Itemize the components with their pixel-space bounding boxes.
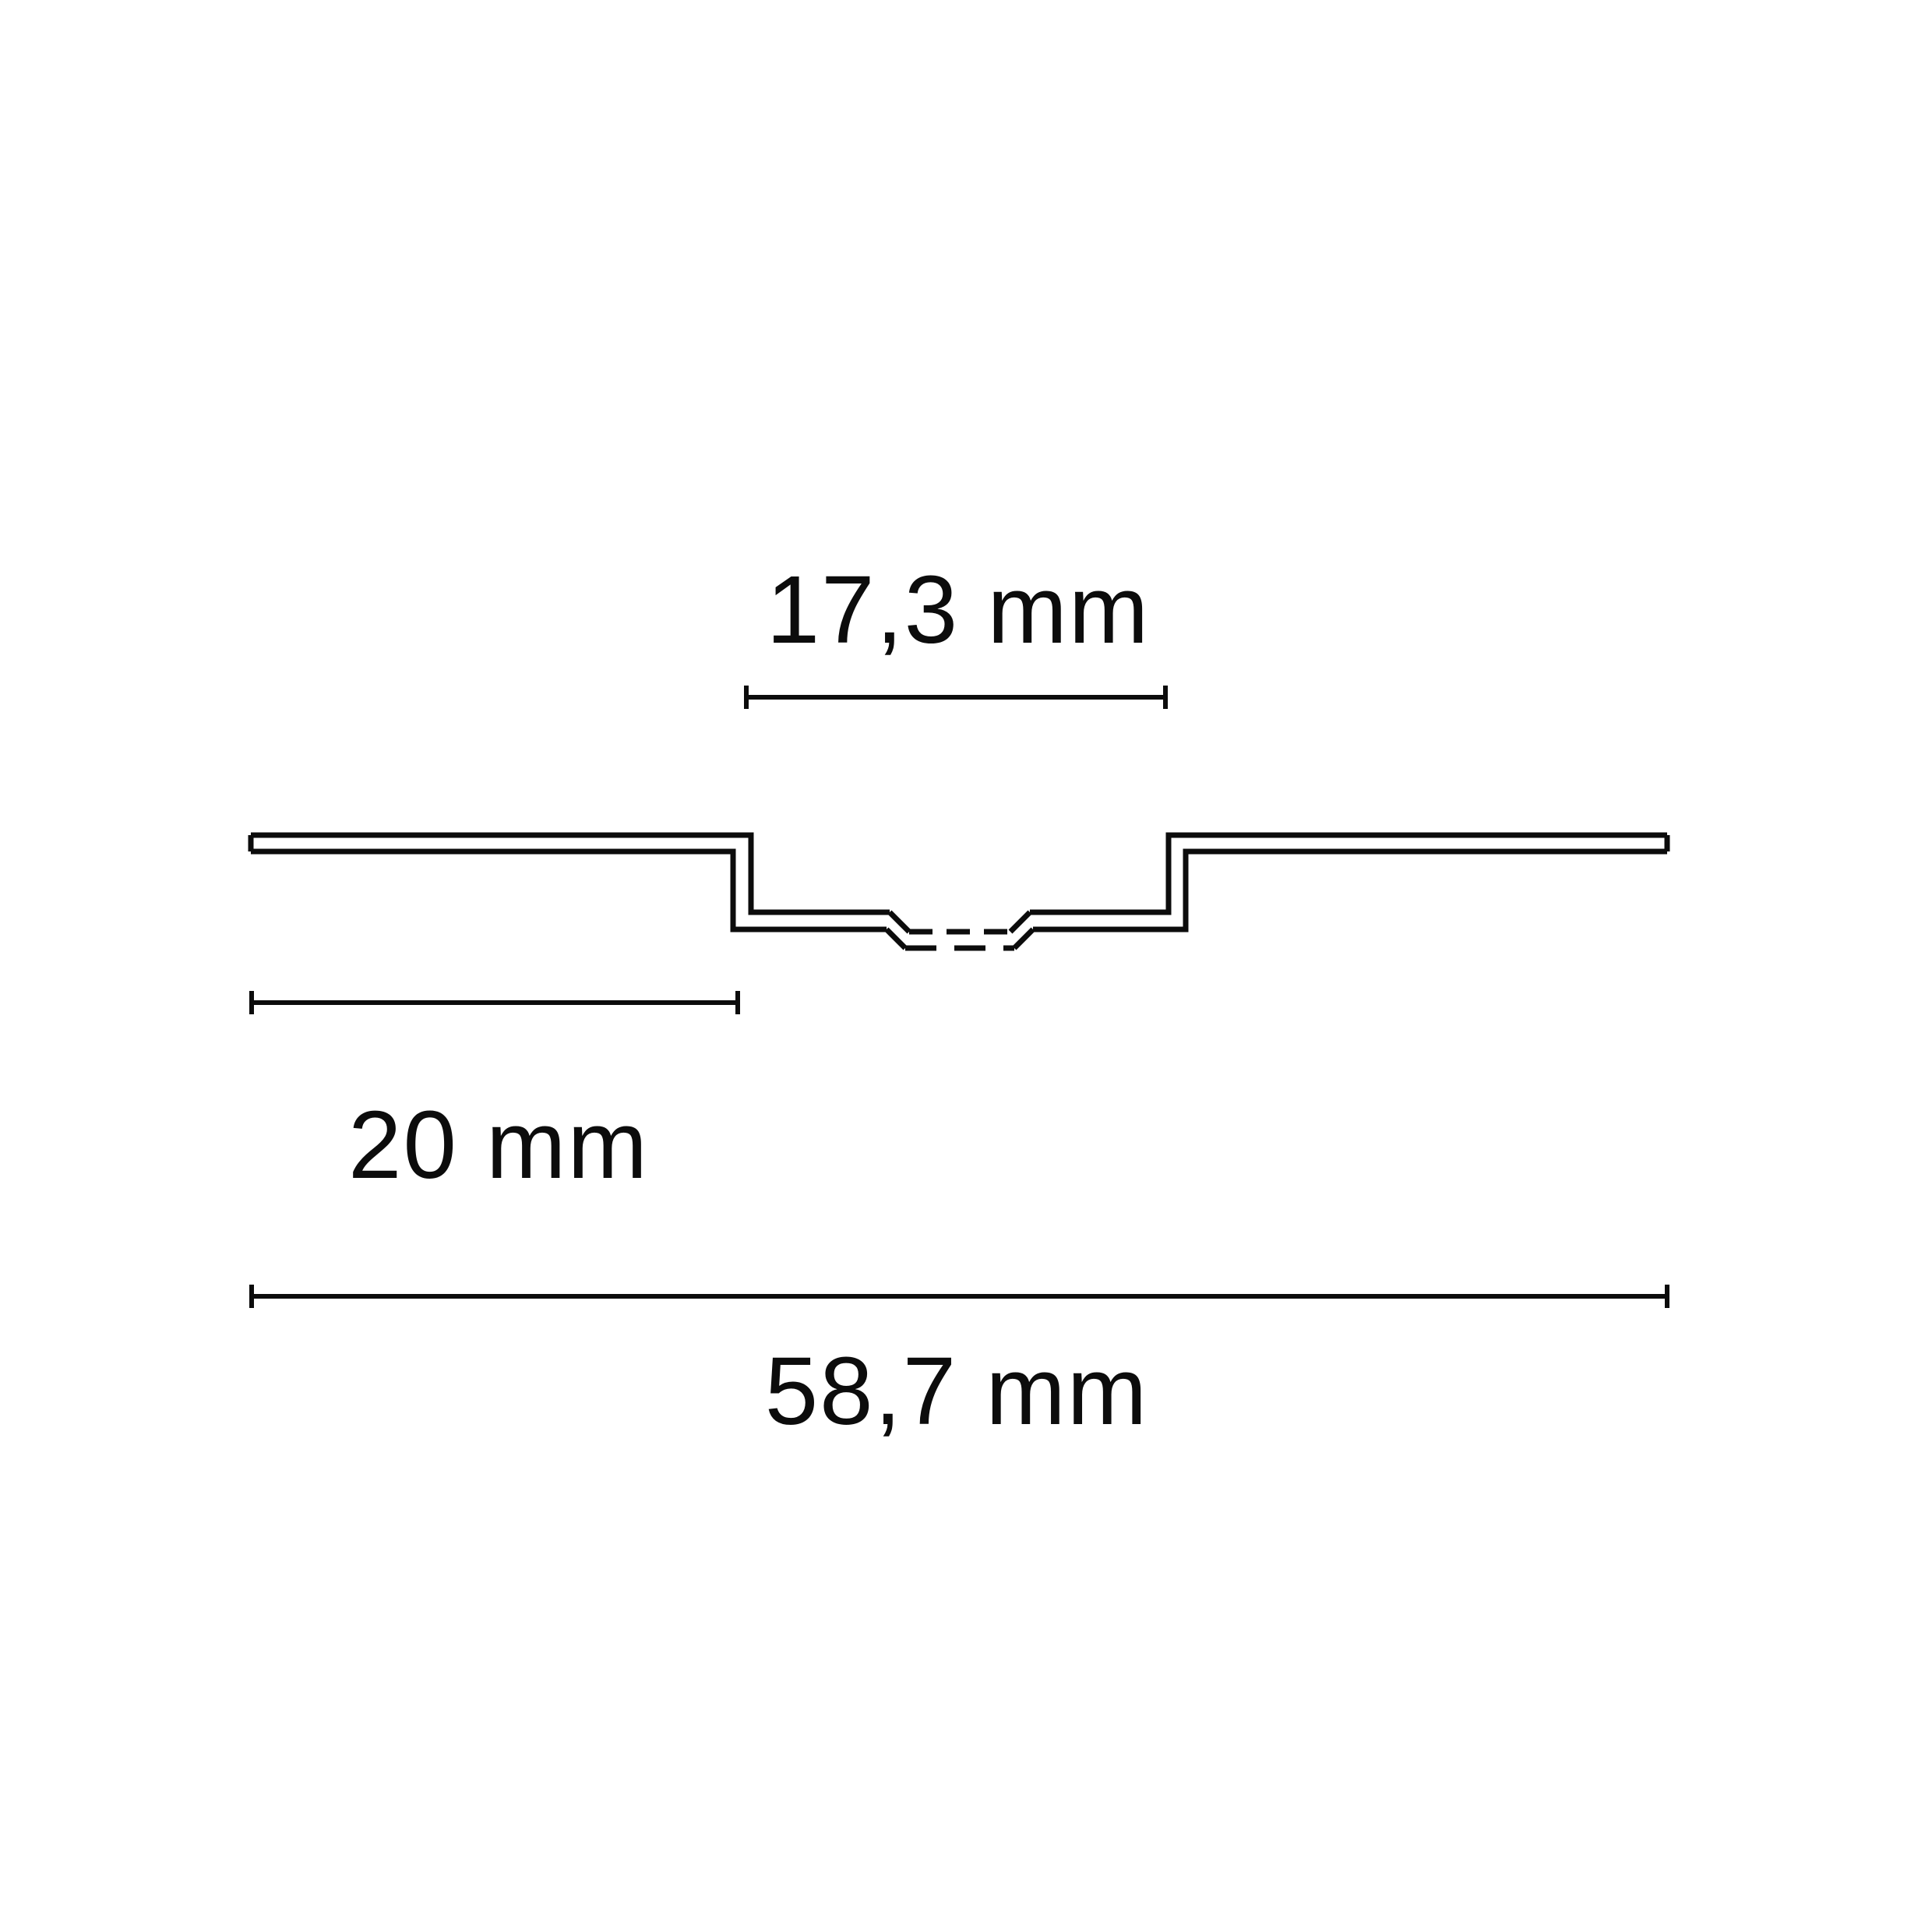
countersink-lower-right-slant	[1014, 929, 1033, 948]
dimension-channel-opening	[746, 686, 1165, 709]
countersink-upper-left-slant	[890, 912, 909, 932]
dimension-label-left-flange: 20 mm	[348, 1092, 649, 1199]
profile-bottom-surface	[251, 851, 1667, 929]
countersink-lower-left-slant	[887, 929, 905, 948]
technical-drawing-canvas: 17,3 mm 20 mm 58,7 mm	[0, 0, 1932, 1932]
profile-dimension-drawing: 17,3 mm 20 mm 58,7 mm	[0, 0, 1932, 1932]
dimension-label-overall-width: 58,7 mm	[765, 1338, 1149, 1445]
profile-outline	[251, 835, 1667, 929]
countersink-detail	[887, 912, 1033, 948]
dimension-overall-width	[252, 1285, 1667, 1308]
countersink-upper-right-slant	[1010, 912, 1030, 932]
dimension-left-flange	[252, 991, 738, 1014]
dimension-label-channel-opening: 17,3 mm	[767, 557, 1151, 664]
profile-top-surface	[251, 835, 1667, 912]
